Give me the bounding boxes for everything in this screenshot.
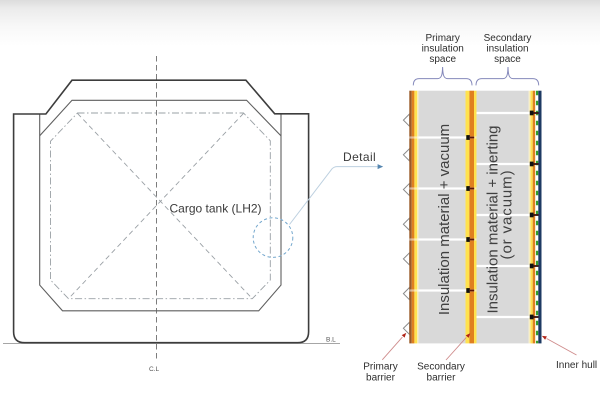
svg-text:Primary: Primary <box>363 362 397 373</box>
svg-text:Secondary: Secondary <box>484 33 532 44</box>
svg-text:barrier: barrier <box>427 372 457 383</box>
svg-text:space: space <box>429 54 456 65</box>
svg-text:(or vacuum): (or vacuum) <box>499 170 516 260</box>
svg-text:Insulation material + vacuum: Insulation material + vacuum <box>436 124 453 315</box>
svg-text:Cargo tank (LH2): Cargo tank (LH2) <box>170 202 262 216</box>
svg-text:Primary: Primary <box>425 33 459 44</box>
svg-text:insulation: insulation <box>422 43 464 54</box>
svg-text:insulation: insulation <box>486 43 528 54</box>
svg-text:Secondary: Secondary <box>417 361 465 372</box>
svg-text:C.L: C.L <box>149 366 160 373</box>
svg-text:barrier: barrier <box>366 373 396 384</box>
svg-text:space: space <box>494 54 521 65</box>
svg-text:B.L: B.L <box>326 337 336 344</box>
svg-text:Detail: Detail <box>343 150 376 164</box>
svg-text:Inner hull: Inner hull <box>556 360 597 371</box>
